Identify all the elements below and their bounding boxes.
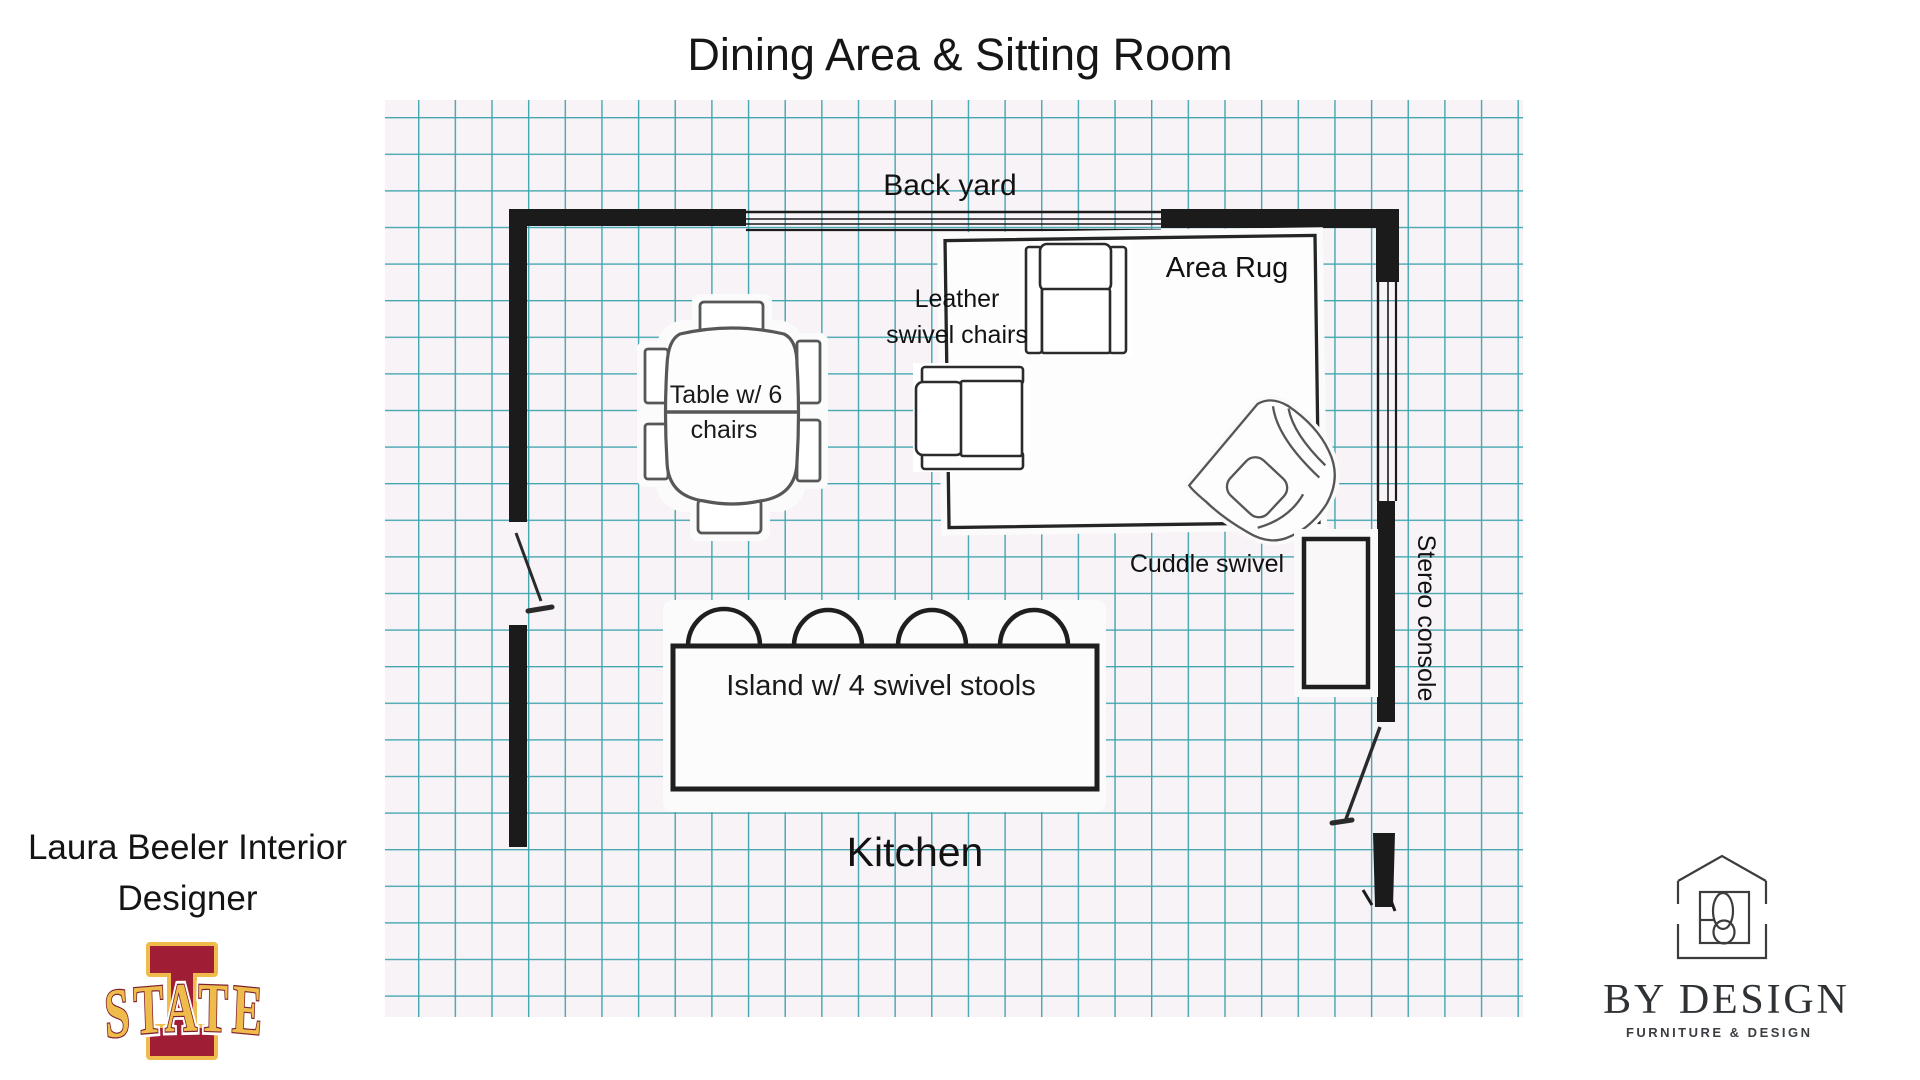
- svg-text:swivel chairs: swivel chairs: [886, 321, 1028, 349]
- svg-text:Kitchen: Kitchen: [847, 829, 984, 875]
- svg-text:Table w/ 6: Table w/ 6: [670, 381, 783, 409]
- svg-text:Island w/ 4 swivel stools: Island w/ 4 swivel stools: [726, 670, 1035, 702]
- svg-text:Area Rug: Area Rug: [1166, 252, 1289, 284]
- svg-text:Leather: Leather: [915, 285, 1000, 313]
- svg-text:Back yard: Back yard: [883, 169, 1016, 202]
- svg-text:Cuddle swivel: Cuddle swivel: [1130, 550, 1284, 578]
- svg-text:STATE: STATE: [102, 969, 267, 1054]
- svg-text:Stereo console: Stereo console: [1412, 535, 1440, 702]
- svg-text:chairs: chairs: [691, 416, 758, 444]
